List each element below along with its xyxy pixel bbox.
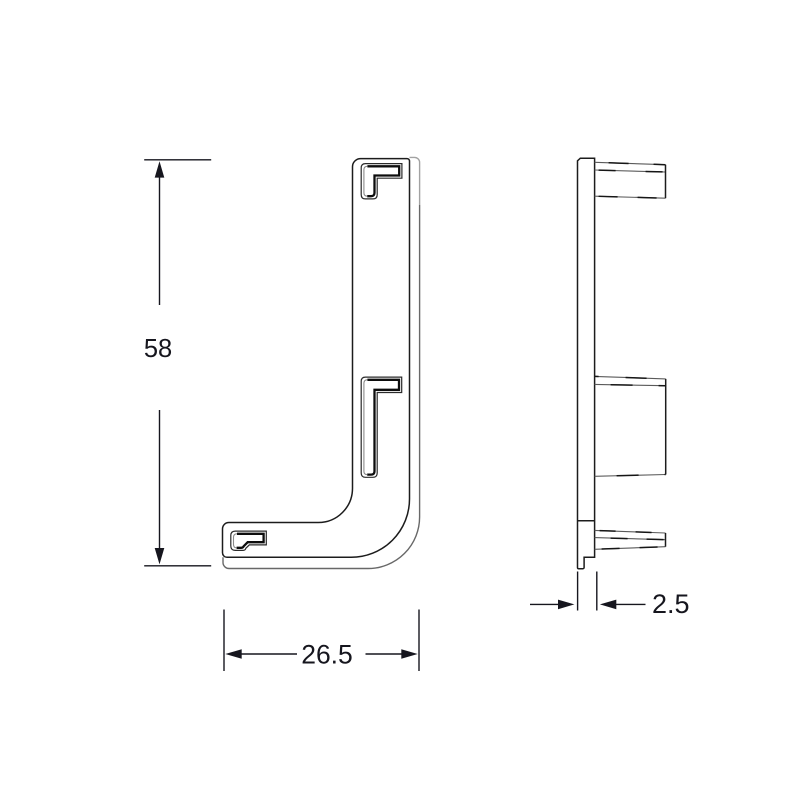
svg-text:26.5: 26.5	[301, 640, 353, 670]
svg-text:2.5: 2.5	[652, 589, 690, 619]
svg-text:58: 58	[144, 335, 172, 363]
